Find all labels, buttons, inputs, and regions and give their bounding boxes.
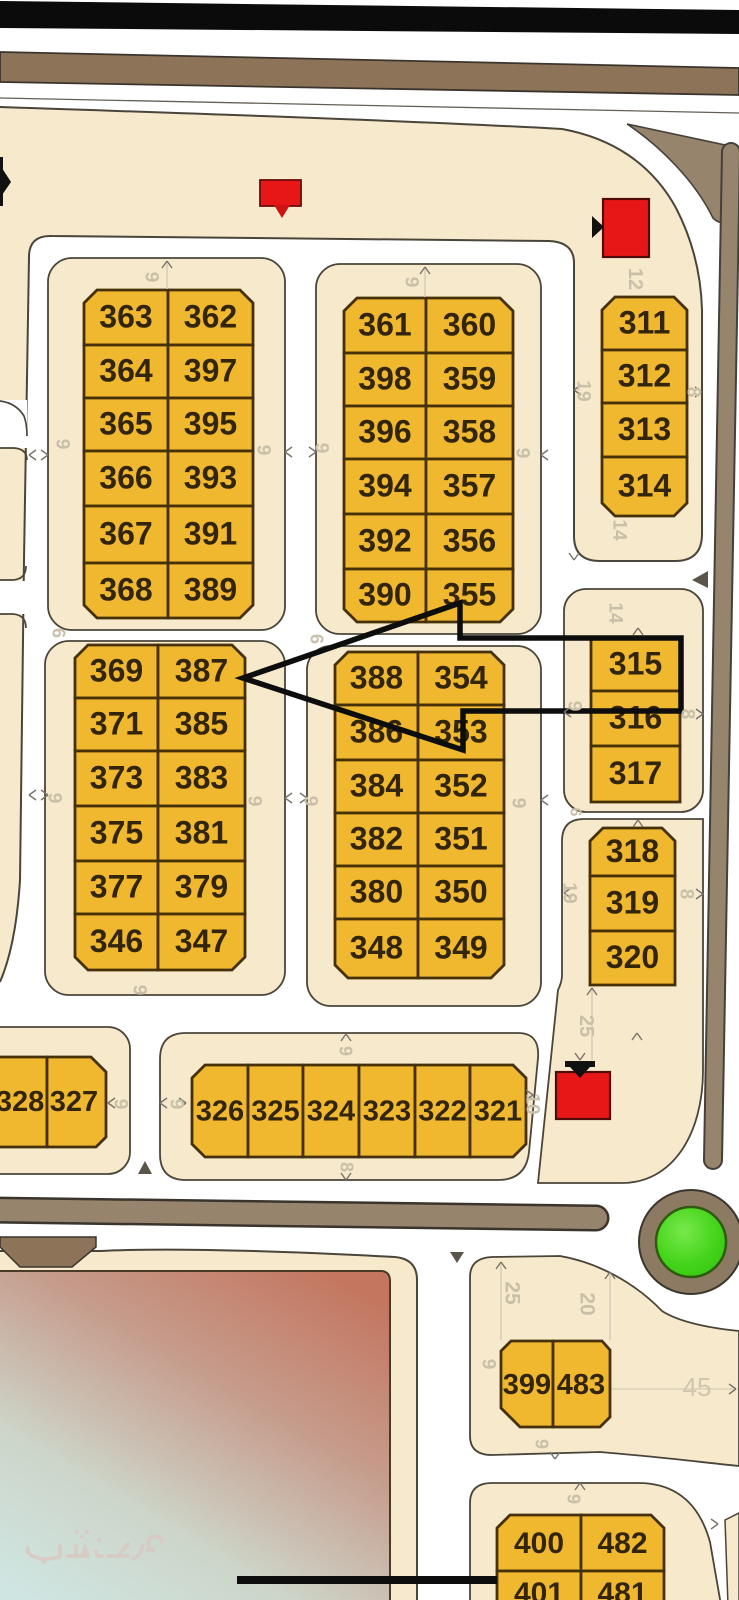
svg-text:367: 367: [99, 516, 152, 552]
svg-text:366: 366: [99, 460, 152, 496]
svg-text:315: 315: [609, 646, 662, 682]
svg-text:371: 371: [90, 706, 143, 742]
svg-text:313: 313: [618, 411, 671, 447]
svg-text:321: 321: [474, 1095, 522, 1127]
svg-text:384: 384: [350, 768, 404, 804]
svg-text:354: 354: [434, 660, 488, 696]
svg-text:9: 9: [109, 1099, 130, 1110]
svg-text:326: 326: [196, 1095, 244, 1127]
svg-text:481: 481: [597, 1577, 647, 1600]
svg-text:351: 351: [434, 821, 487, 857]
svg-text:393: 393: [184, 460, 237, 496]
svg-text:316: 316: [609, 700, 662, 736]
svg-text:10: 10: [521, 1093, 542, 1114]
svg-text:9: 9: [51, 439, 72, 450]
svg-text:25: 25: [501, 1281, 524, 1305]
svg-text:9: 9: [511, 448, 532, 459]
svg-text:390: 390: [358, 577, 411, 613]
svg-text:356: 356: [443, 523, 496, 559]
svg-text:398: 398: [358, 361, 411, 397]
svg-text:9: 9: [310, 443, 331, 454]
svg-text:388: 388: [350, 660, 403, 696]
svg-text:9: 9: [564, 1494, 584, 1504]
svg-text:25: 25: [575, 1015, 597, 1037]
svg-text:394: 394: [358, 468, 412, 504]
svg-text:9: 9: [128, 985, 149, 996]
svg-text:9: 9: [43, 793, 64, 804]
svg-text:8: 8: [676, 709, 697, 720]
svg-text:346: 346: [90, 923, 143, 959]
svg-text:362: 362: [184, 299, 237, 335]
svg-text:399: 399: [503, 1369, 551, 1401]
svg-text:364: 364: [99, 353, 153, 389]
svg-text:9: 9: [400, 277, 421, 288]
svg-text:482: 482: [597, 1527, 647, 1560]
svg-text:383: 383: [175, 760, 228, 796]
svg-text:19: 19: [558, 882, 579, 903]
svg-text:395: 395: [184, 406, 237, 442]
svg-text:373: 373: [90, 760, 143, 796]
svg-text:375: 375: [90, 815, 143, 851]
svg-text:319: 319: [606, 885, 659, 921]
svg-text:401: 401: [514, 1577, 564, 1600]
svg-text:9: 9: [507, 798, 528, 809]
svg-text:379: 379: [175, 869, 228, 905]
svg-text:323: 323: [363, 1095, 411, 1127]
svg-text:391: 391: [184, 516, 237, 552]
svg-text:357: 357: [443, 468, 496, 504]
svg-text:9: 9: [243, 796, 264, 807]
svg-text:327: 327: [50, 1086, 98, 1118]
svg-text:483: 483: [557, 1369, 605, 1401]
svg-text:347: 347: [175, 923, 228, 959]
svg-text:312: 312: [618, 358, 671, 394]
svg-text:14: 14: [604, 602, 625, 624]
svg-text:8: 8: [675, 889, 696, 900]
svg-text:8: 8: [682, 387, 703, 398]
svg-text:381: 381: [175, 815, 228, 851]
svg-text:9: 9: [563, 701, 584, 712]
svg-text:389: 389: [184, 572, 237, 608]
svg-text:12: 12: [624, 268, 646, 290]
svg-text:9: 9: [252, 445, 273, 456]
svg-text:380: 380: [350, 874, 403, 910]
svg-text:9: 9: [299, 796, 320, 807]
svg-text:6: 6: [307, 634, 327, 644]
svg-text:358: 358: [443, 414, 496, 450]
svg-text:360: 360: [443, 307, 496, 343]
svg-text:349: 349: [434, 930, 487, 966]
svg-text:314: 314: [618, 468, 672, 504]
svg-text:9: 9: [336, 1046, 356, 1056]
svg-text:8: 8: [337, 1162, 357, 1172]
svg-text:352: 352: [434, 768, 487, 804]
svg-text:20: 20: [576, 1292, 599, 1315]
svg-text:382: 382: [350, 821, 403, 857]
svg-text:369: 369: [90, 653, 143, 689]
svg-text:325: 325: [251, 1095, 299, 1127]
svg-text:320: 320: [606, 939, 659, 975]
svg-text:361: 361: [358, 307, 411, 343]
svg-text:396: 396: [358, 414, 411, 450]
svg-text:6: 6: [49, 628, 69, 638]
svg-text:368: 368: [99, 572, 152, 608]
svg-text:311: 311: [619, 305, 671, 341]
svg-text:400: 400: [514, 1527, 564, 1560]
svg-text:385: 385: [175, 706, 228, 742]
svg-text:6: 6: [566, 808, 583, 817]
svg-text:363: 363: [99, 299, 152, 335]
svg-text:45: 45: [683, 1372, 712, 1402]
svg-text:377: 377: [90, 869, 143, 905]
svg-text:19: 19: [572, 380, 593, 401]
svg-text:14: 14: [608, 519, 629, 541]
svg-text:359: 359: [443, 361, 496, 397]
svg-text:392: 392: [358, 523, 411, 559]
svg-text:348: 348: [350, 930, 403, 966]
svg-text:9: 9: [165, 1099, 186, 1110]
svg-text:365: 365: [99, 406, 152, 442]
svg-text:397: 397: [184, 353, 237, 389]
svg-text:9: 9: [532, 1439, 552, 1449]
svg-text:317: 317: [609, 755, 662, 791]
svg-text:318: 318: [606, 833, 659, 869]
svg-text:328: 328: [0, 1086, 44, 1118]
svg-text:324: 324: [307, 1095, 355, 1127]
svg-text:322: 322: [418, 1095, 466, 1127]
svg-text:9: 9: [477, 1359, 498, 1370]
svg-text:9: 9: [140, 272, 161, 283]
svg-text:350: 350: [434, 874, 487, 910]
svg-text:387: 387: [175, 653, 228, 689]
